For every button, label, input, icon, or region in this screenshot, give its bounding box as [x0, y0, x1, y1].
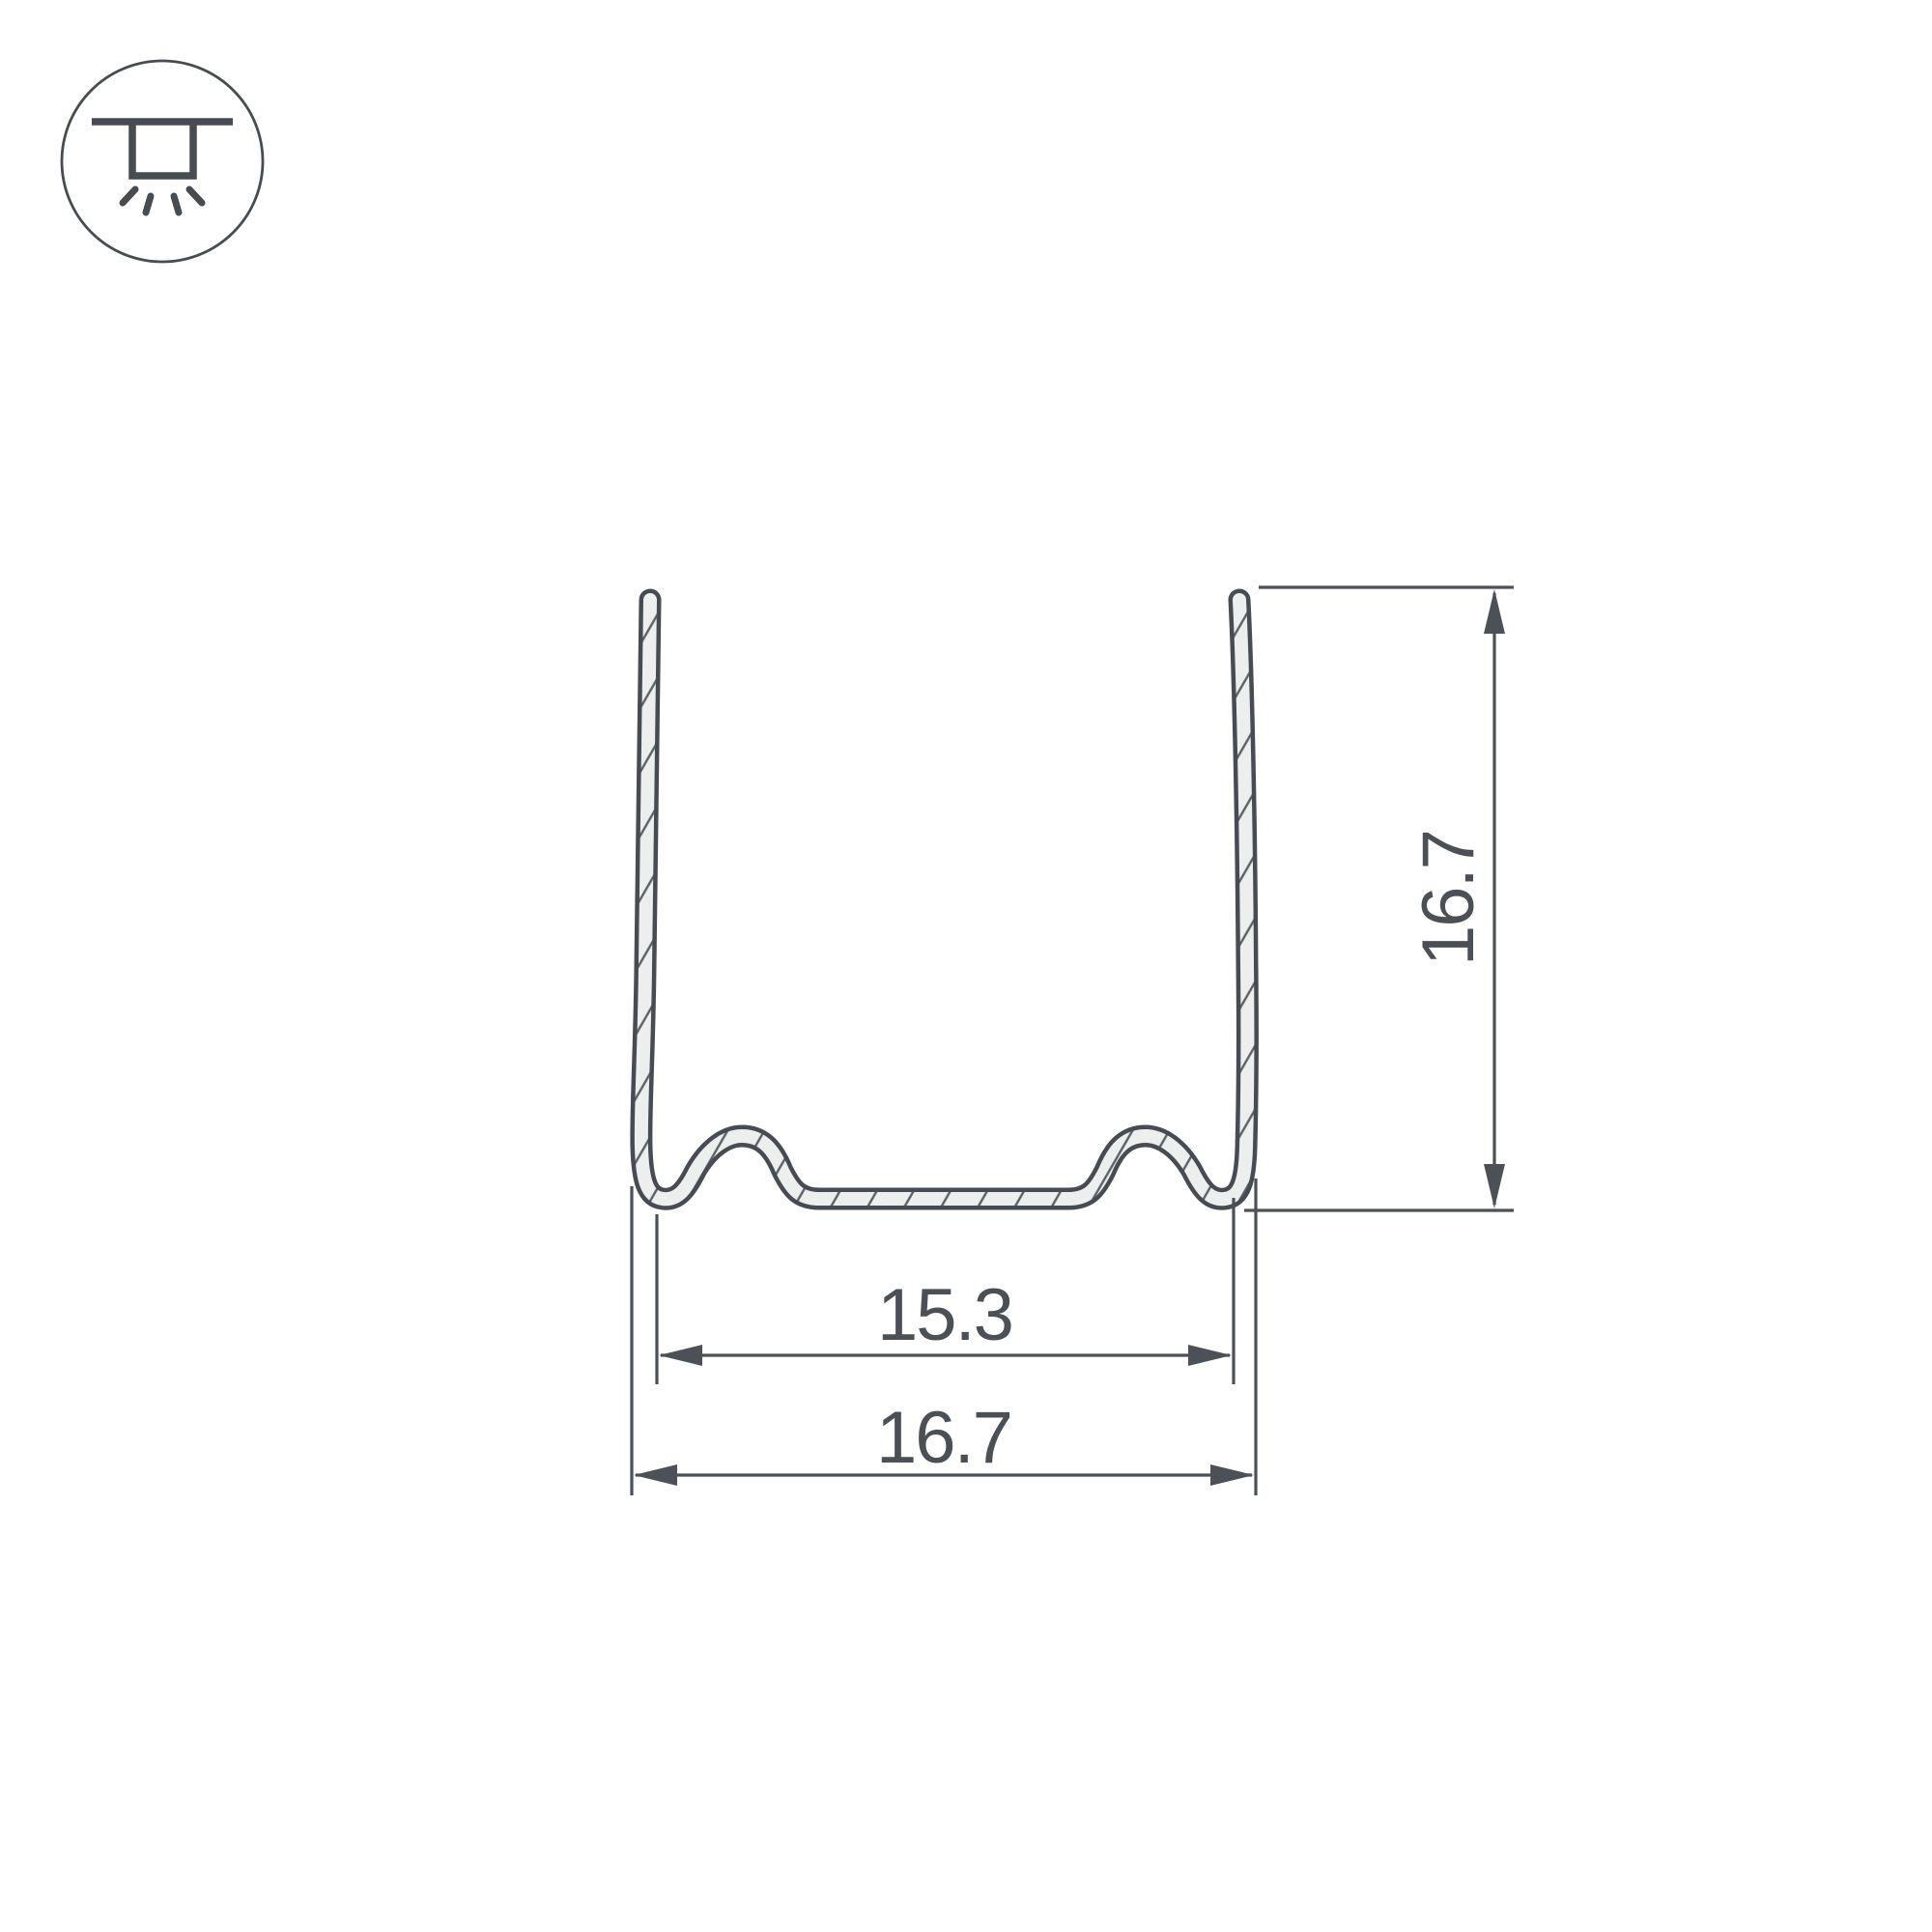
dim-inner-width-label: 15.3	[877, 1274, 1012, 1356]
profile-technical-drawing: 16.7 15.3 16.7	[0, 0, 1932, 1932]
arrowhead-right	[1188, 1345, 1232, 1366]
icon-circle-border	[62, 61, 263, 262]
profile-cross-section	[641, 600, 1248, 1199]
drawing-canvas: 16.7 15.3 16.7	[0, 0, 1932, 1932]
arrowhead-down	[1484, 1164, 1505, 1208]
sheet-outline	[641, 600, 1248, 1199]
arrowhead-left	[634, 1464, 677, 1486]
arrowhead-right	[1210, 1464, 1254, 1486]
arrowhead-left	[659, 1345, 702, 1366]
light-rays-icon	[123, 189, 202, 213]
dim-height-label: 16.7	[1407, 831, 1490, 966]
dim-inner-width: 15.3	[657, 1198, 1234, 1384]
light-fixture-box-icon	[132, 122, 193, 176]
dim-outer-width-label: 16.7	[876, 1397, 1011, 1479]
mount-type-icon	[62, 61, 263, 262]
arrowhead-up	[1484, 589, 1505, 634]
dim-height: 16.7	[1244, 587, 1514, 1210]
sheet-material-hatch	[641, 600, 1248, 1199]
